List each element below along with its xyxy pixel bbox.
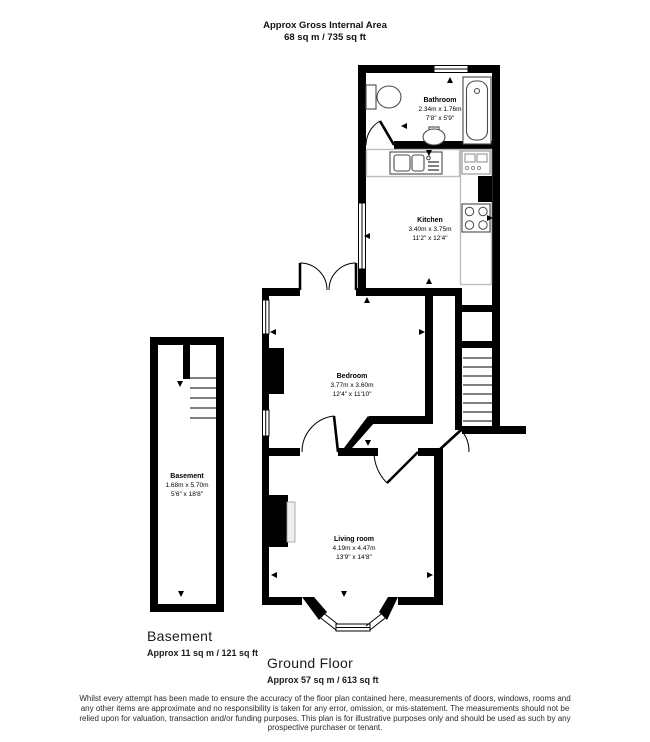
svg-text:Bathroom: Bathroom xyxy=(423,97,456,104)
french-doors xyxy=(300,263,356,290)
living-room-door xyxy=(374,452,418,483)
disclaimer-line: any other items are approximate and no r… xyxy=(0,704,650,714)
doors xyxy=(300,121,469,483)
bathroom-door xyxy=(366,121,394,145)
bathroom-label: Bathroom 2.34m x 1.76m 7'8" x 5'9" xyxy=(419,97,462,122)
svg-text:11'2" x 12'4": 11'2" x 12'4" xyxy=(412,235,448,242)
svg-text:12'4" x 11'10": 12'4" x 11'10" xyxy=(333,391,372,398)
svg-text:3.40m x 3.75m: 3.40m x 3.75m xyxy=(409,226,452,233)
svg-text:7'8" x 5'9": 7'8" x 5'9" xyxy=(426,115,455,122)
svg-text:Bedroom: Bedroom xyxy=(337,373,368,380)
oven-icon xyxy=(462,151,490,174)
floorplan-drawing: Bathroom 2.34m x 1.76m 7'8" x 5'9" Kitch… xyxy=(0,0,650,742)
ground-floor-caption: Ground Floor Approx 57 sq m / 613 sq ft xyxy=(267,655,379,685)
svg-text:5'6" x 18'8": 5'6" x 18'8" xyxy=(171,491,204,498)
basement-label: Basement 1.68m x 5.70m 5'6" x 18'8" xyxy=(166,473,209,498)
svg-text:1.68m x 5.70m: 1.68m x 5.70m xyxy=(166,482,209,489)
basin-icon xyxy=(423,127,445,145)
kitchen-chimney xyxy=(478,176,492,202)
bedroom-label: Bedroom 3.77m x 3.60m 12'4" x 11'10" xyxy=(331,373,374,398)
disclaimer-line: Whilst every attempt has been made to en… xyxy=(0,694,650,704)
ground-floor-walls xyxy=(262,65,526,620)
bedroom-window-2 xyxy=(263,410,270,436)
fireplace-hearth xyxy=(287,502,295,542)
basement-floor-area: Approx 11 sq m / 121 sq ft xyxy=(147,648,258,658)
ground-floor-name: Ground Floor xyxy=(267,655,379,671)
svg-text:2.34m x 1.76m: 2.34m x 1.76m xyxy=(419,106,462,113)
basement-floor-caption: Basement Approx 11 sq m / 121 sq ft xyxy=(147,628,258,658)
svg-text:13'9" x 14'8": 13'9" x 14'8" xyxy=(336,554,372,561)
hob-icon xyxy=(462,204,490,232)
bathroom-window xyxy=(434,66,468,73)
living-room-label: Living room 4.19m x 4.47m 13'9" x 14'8" xyxy=(333,536,376,561)
svg-text:4.19m x 4.47m: 4.19m x 4.47m xyxy=(333,545,376,552)
disclaimer-line: prospective purchaser or tenant. xyxy=(0,723,650,733)
svg-text:Kitchen: Kitchen xyxy=(417,217,443,224)
svg-text:Living room: Living room xyxy=(334,536,374,543)
kitchen-label: Kitchen 3.40m x 3.75m 11'2" x 12'4" xyxy=(409,217,452,242)
svg-text:3.77m x 3.60m: 3.77m x 3.60m xyxy=(331,382,374,389)
basement-floor-name: Basement xyxy=(147,628,258,644)
ground-floor-area: Approx 57 sq m / 613 sq ft xyxy=(267,675,379,685)
toilet-icon xyxy=(366,85,401,109)
floorplan-page: Approx Gross Internal Area 68 sq m / 735… xyxy=(0,0,650,742)
kitchen-sink-icon xyxy=(390,152,442,174)
staircase-icon xyxy=(463,358,492,421)
bedroom-door xyxy=(302,416,338,452)
svg-text:Basement: Basement xyxy=(170,473,204,480)
disclaimer-text: Whilst every attempt has been made to en… xyxy=(0,694,650,733)
bedroom-window xyxy=(263,300,270,334)
disclaimer-line: relied upon for valuation, transaction a… xyxy=(0,714,650,724)
bay-window xyxy=(317,611,389,631)
bathtub-icon xyxy=(463,77,491,144)
